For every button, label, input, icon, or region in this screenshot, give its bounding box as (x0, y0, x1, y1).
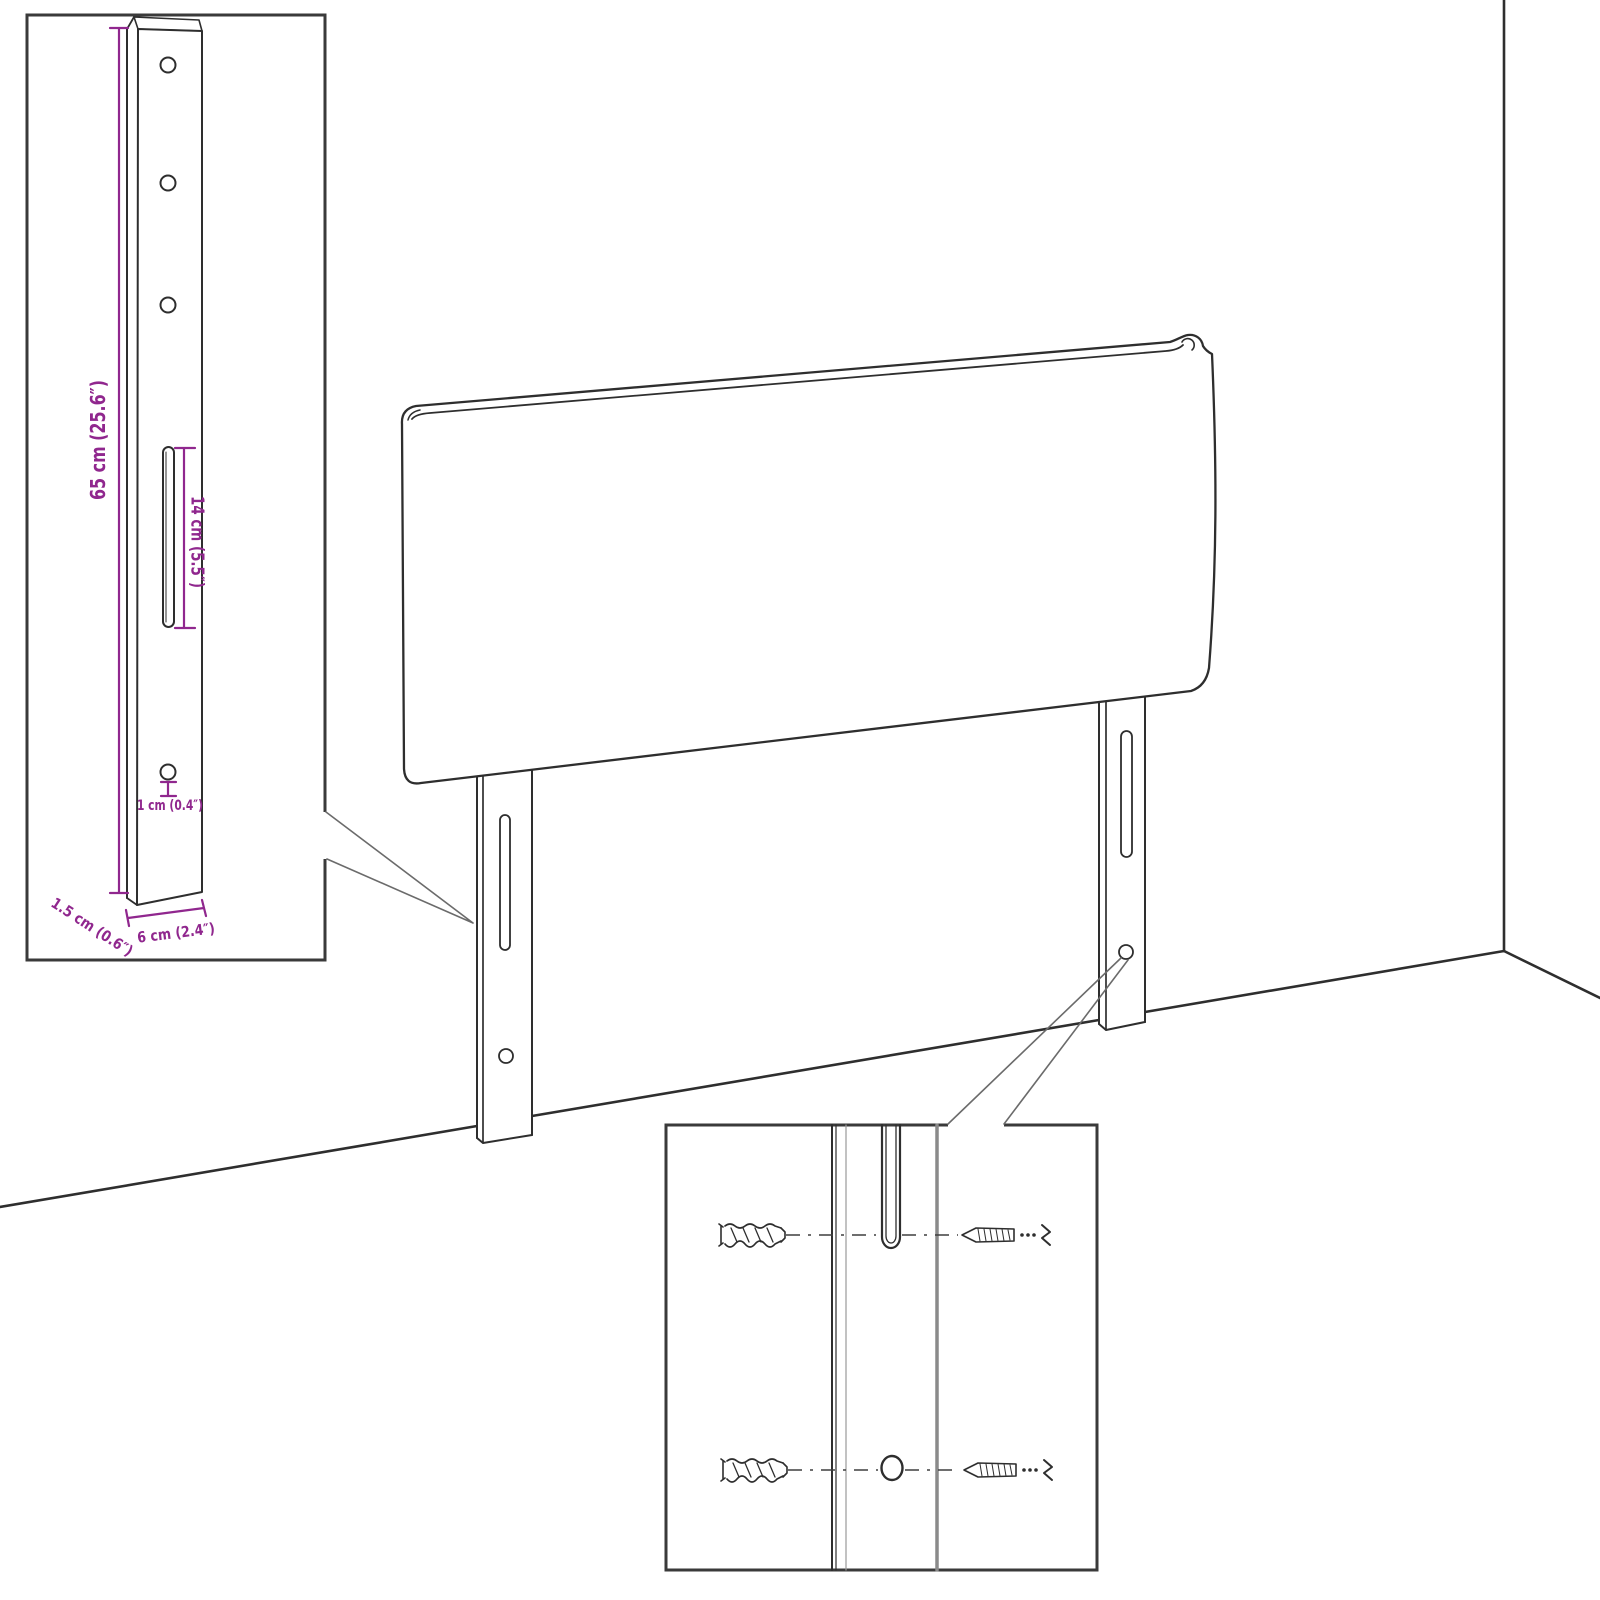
dim-hole-diameter-label: 1 cm (0.4″) (137, 798, 203, 814)
diagram-canvas: 65 cm (25.6″) 14 cm (5.5″) 1 cm (0.4″) 6… (0, 0, 1600, 1600)
headboard-dimension-diagram: 65 cm (25.6″) 14 cm (5.5″) 1 cm (0.4″) 6… (0, 0, 1600, 1600)
inset-leg-detail: 65 cm (25.6″) 14 cm (5.5″) 1 cm (0.4″) 6… (27, 15, 325, 960)
leg-detail-drawing (127, 17, 202, 905)
leader-lines-leg-detail (326, 812, 473, 923)
left-leg (477, 762, 532, 1143)
inset-hardware-detail (666, 1125, 1097, 1570)
headboard-panel (402, 335, 1216, 784)
floor-line-right (1504, 951, 1600, 998)
dim-slot-length-label: 14 cm (5.5″) (187, 496, 208, 588)
right-leg (1099, 688, 1145, 1030)
dim-leg-height-label: 65 cm (25.6″) (86, 380, 110, 500)
panel-outline (402, 335, 1216, 784)
